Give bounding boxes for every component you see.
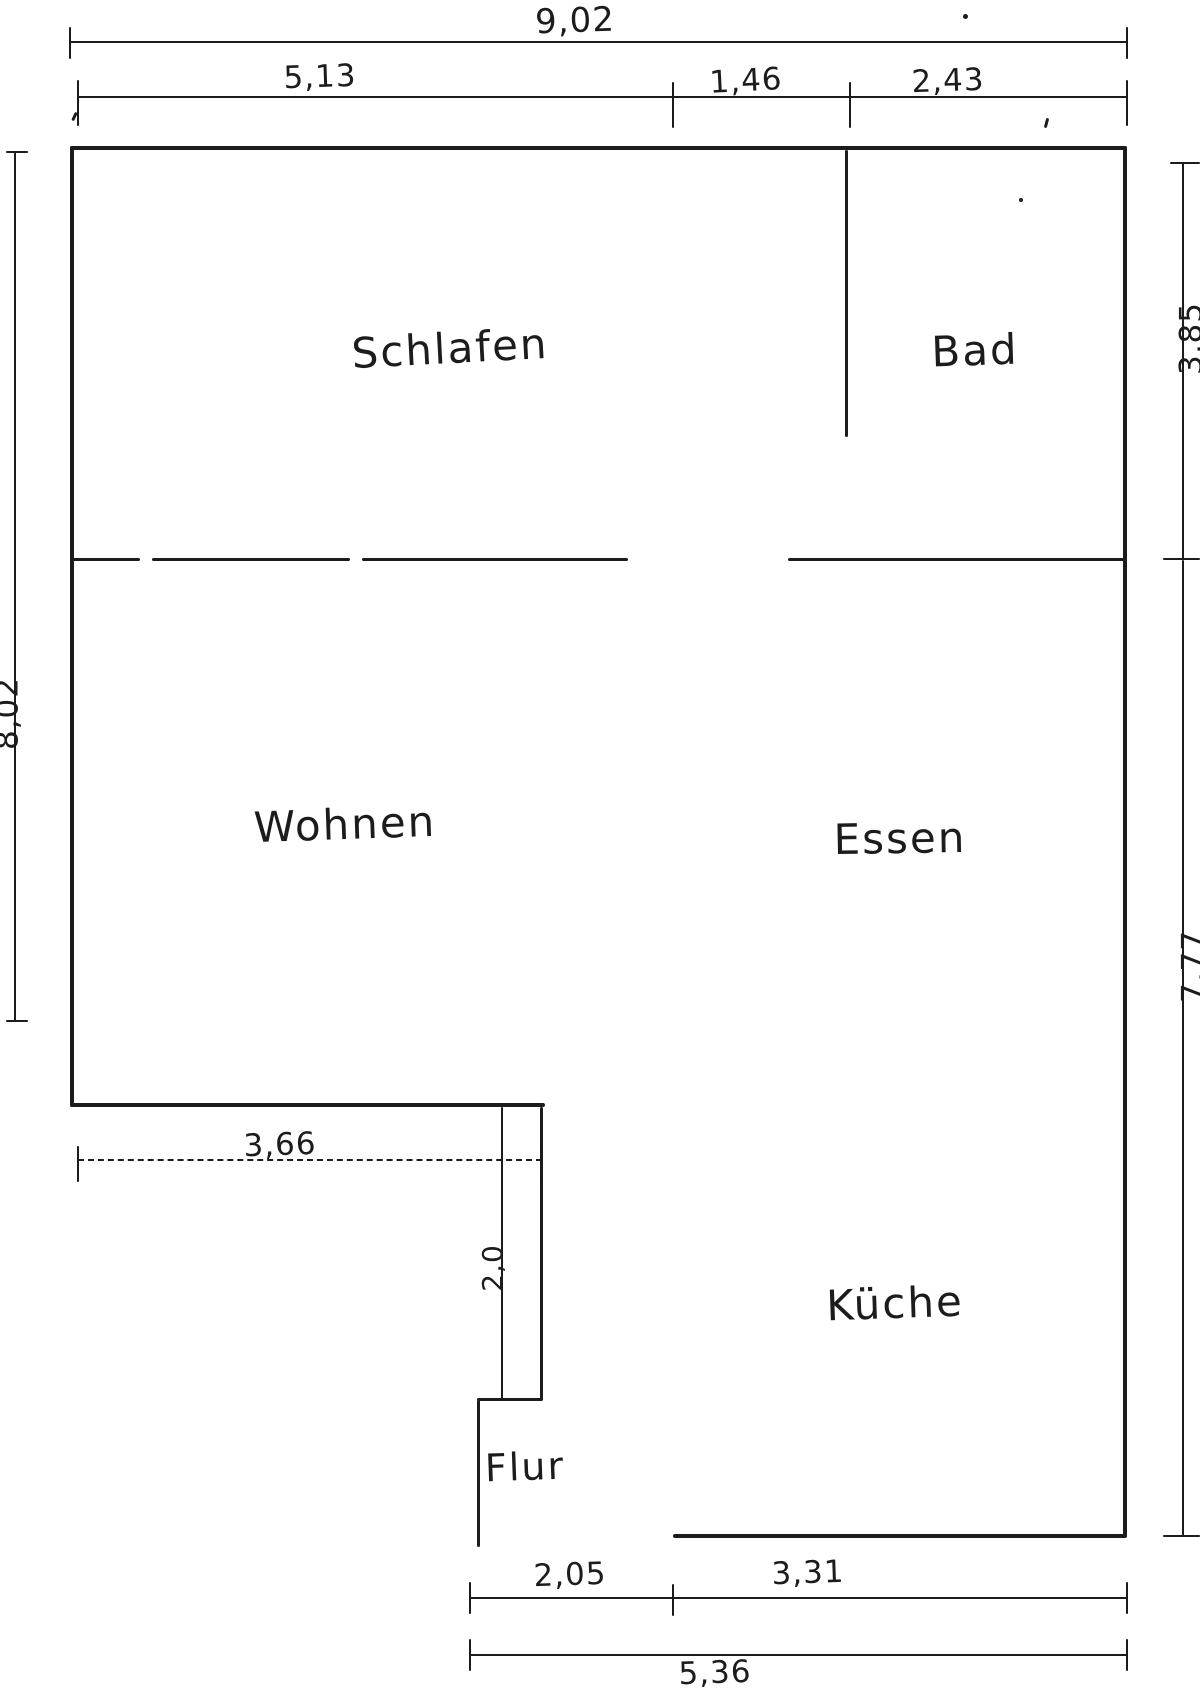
wall-wohnen-bottom: [70, 1103, 545, 1107]
wall-outer-right: [1123, 146, 1127, 1537]
wall-bad-essen: [788, 558, 1127, 561]
dim-line-bottom-total: [470, 1654, 1127, 1656]
dim-line-left: [14, 152, 16, 1022]
dim-tick: [469, 1582, 471, 1614]
scan-speck: [1044, 118, 1049, 128]
dim-label-bottom-right: 3,31: [747, 1556, 868, 1591]
dim-tick: [77, 80, 79, 126]
wall-schlafen-bad: [845, 150, 848, 437]
dim-tick: [6, 1020, 28, 1022]
dim-label-mid-width: 3,66: [219, 1128, 340, 1163]
dim-line-right-lower: [1182, 560, 1184, 1537]
dim-line-top-total: [70, 41, 1127, 43]
dim-tick: [1126, 1582, 1128, 1614]
dim-tick: [672, 1584, 674, 1616]
wall-outer-top: [70, 146, 1127, 150]
wall-outer-left: [70, 146, 74, 1107]
wall-kueche-bottom: [673, 1534, 1127, 1538]
dim-label-top-left: 5,13: [259, 60, 380, 95]
wall-schlafen-wohnen-a: [70, 558, 140, 561]
room-label-essen: Essen: [780, 816, 1021, 862]
dim-label-corridor-width: 2,0: [479, 1218, 507, 1318]
room-label-flur: Flur: [459, 1446, 590, 1489]
room-label-schlafen: Schlafen: [329, 322, 571, 377]
room-label-bad: Bad: [914, 328, 1035, 374]
dim-tick: [1163, 1535, 1200, 1537]
dim-label-bottom-left: 2,05: [509, 1558, 630, 1593]
dim-tick: [469, 1639, 471, 1671]
dim-label-right-upper: 3,85: [1177, 279, 1200, 399]
room-label-kueche: Küche: [774, 1279, 1015, 1329]
dim-label-left-total: 8,02: [0, 654, 24, 774]
wall-schlafen-wohnen-b: [152, 558, 350, 561]
dim-label-right-lower: 7,77: [1179, 907, 1200, 1027]
wall-corridor-foot: [477, 1398, 543, 1401]
dim-tick: [540, 1148, 542, 1182]
dim-label-top-mid: 1,46: [695, 63, 796, 99]
dim-tick: [1126, 80, 1128, 126]
dim-tick: [6, 151, 28, 153]
dim-tick: [672, 82, 674, 128]
dim-tick: [849, 82, 851, 128]
floor-plan: 9,02 5,13 1,46 2,43 8,02 3,85 7,77 3,66 …: [0, 0, 1200, 1696]
scan-speck: [1019, 198, 1023, 202]
dim-tick: [1170, 162, 1200, 164]
scan-speck: [963, 14, 968, 19]
dim-tick: [1126, 27, 1128, 59]
dim-line-bottom-segments: [470, 1597, 1127, 1599]
dim-tick: [77, 1146, 79, 1182]
wall-schlafen-wohnen-c: [362, 558, 628, 561]
dim-label-top-right: 2,43: [897, 64, 998, 98]
dim-label-top-total: 9,02: [514, 2, 635, 40]
dim-tick: [69, 27, 71, 59]
room-label-wohnen: Wohnen: [224, 800, 465, 850]
dim-tick: [1126, 1639, 1128, 1671]
dim-label-bottom-total: 5,36: [654, 1656, 775, 1691]
